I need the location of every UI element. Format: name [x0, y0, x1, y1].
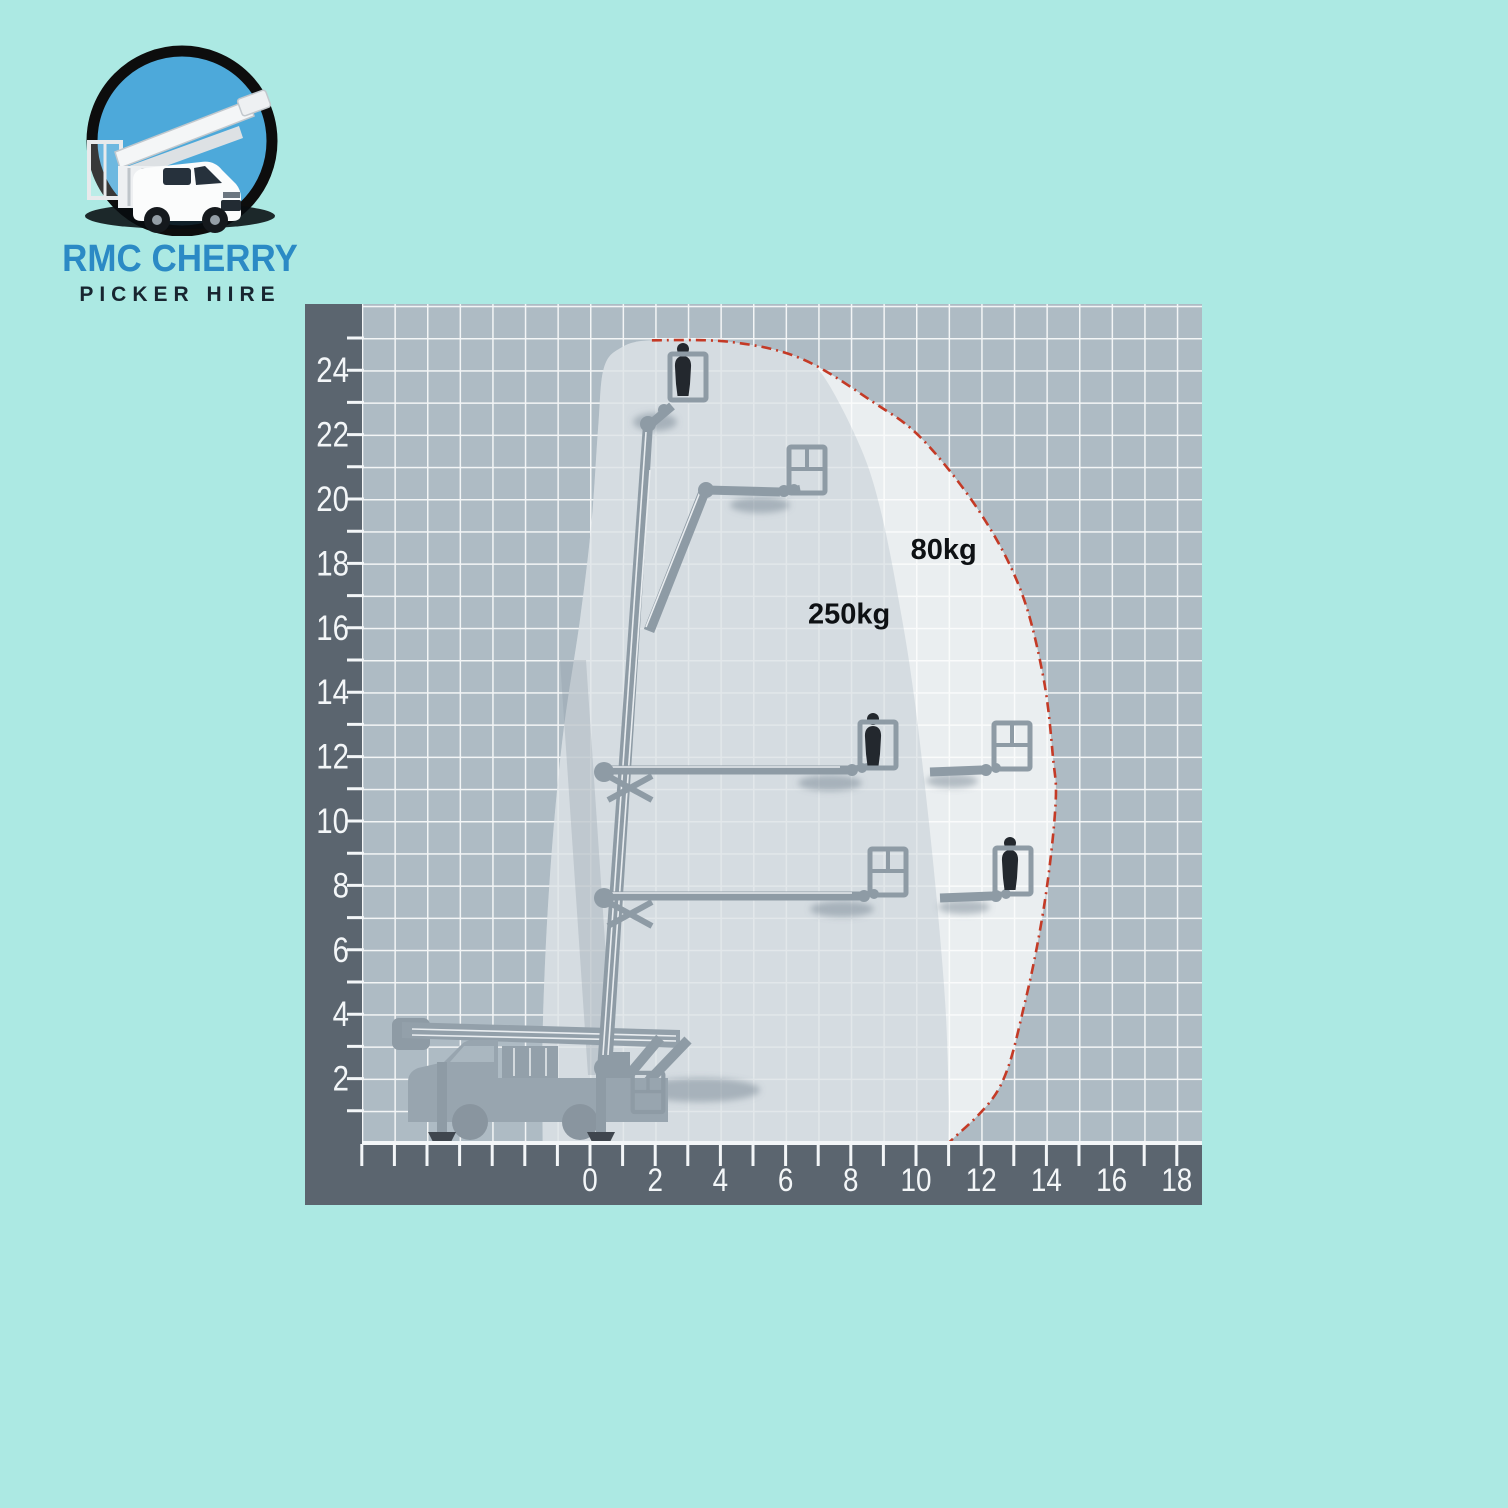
x-axis-label: 12 [966, 1163, 997, 1198]
y-axis-label: 22 [316, 415, 349, 454]
y-axis-label: 24 [316, 351, 349, 390]
x-axis-label: 6 [778, 1163, 793, 1198]
x-axis-label: 18 [1161, 1163, 1192, 1198]
headlight [223, 192, 240, 198]
y-axis-label: 14 [316, 673, 349, 712]
y-axis-label: 16 [316, 608, 349, 647]
x-axis-label: 16 [1096, 1163, 1127, 1198]
zone-label-80kg: 80kg [911, 534, 977, 566]
logo-title: RMC CHERRY [60, 238, 299, 281]
y-axis-label: 10 [316, 802, 349, 841]
boom-pivot [594, 762, 614, 782]
x-axis-label: 14 [1031, 1163, 1062, 1198]
y-axis-label: 2 [333, 1059, 349, 1098]
y-axis-label: 18 [316, 544, 349, 583]
x-axis-label: 10 [901, 1163, 932, 1198]
front-wheel [452, 1104, 488, 1140]
person-icon [675, 343, 691, 396]
front-outrigger [437, 1062, 447, 1132]
working-envelope-diagram: 250kg80kg [305, 304, 1202, 1205]
x-axis-label: 0 [582, 1163, 597, 1198]
x-axis-label: 8 [843, 1163, 858, 1198]
x-axis-label: 2 [647, 1163, 662, 1198]
x-axis-label: 4 [713, 1163, 728, 1198]
y-axis-label: 8 [333, 866, 349, 905]
side-window [163, 168, 191, 185]
zone-label-250kg: 250kg [808, 598, 890, 630]
reach-envelope-chart: 250kg80kg [305, 304, 1202, 1205]
person-icon [1002, 837, 1018, 890]
boom-knuckle [658, 404, 670, 416]
grille [221, 200, 241, 211]
boom-knuckle [640, 416, 656, 432]
logo-badge [63, 44, 297, 236]
company-logo: RMC CHERRY PICKER HIRE [50, 44, 310, 307]
page-background: RMC CHERRY PICKER HIRE [0, 0, 1508, 1508]
y-axis-label: 20 [316, 480, 349, 519]
y-axis-label: 12 [316, 737, 349, 776]
y-axis-label: 6 [333, 930, 349, 969]
logo-subtitle: PICKER HIRE [50, 283, 310, 307]
boom-pivot [594, 888, 614, 908]
y-axis-label: 4 [333, 995, 349, 1034]
